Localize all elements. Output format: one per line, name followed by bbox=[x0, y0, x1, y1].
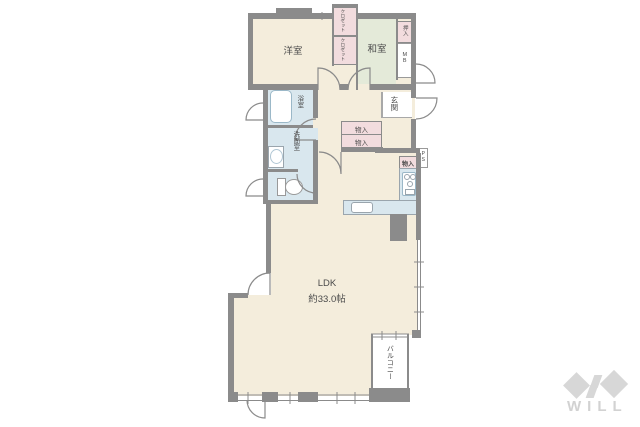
label-kitchen-storage: 物入 bbox=[399, 159, 417, 168]
door-arc-meter-box bbox=[416, 64, 435, 83]
door-arc-toilet bbox=[297, 174, 316, 193]
door-arc-hall-ldk bbox=[319, 152, 341, 174]
window-bottom bbox=[234, 392, 370, 404]
door-arc-western-room bbox=[318, 68, 340, 90]
label-oshiire: 押入 bbox=[401, 25, 407, 36]
label-bath: 浴室 bbox=[295, 95, 302, 108]
label-ldk-size: 約33.0帖 bbox=[297, 291, 357, 305]
label-closet-1: クロゼット bbox=[340, 9, 345, 32]
floor-plan: 洋室 和室 クロゼット クロゼット 押入 MB PS 玄関 浴室 洗面室 物入 … bbox=[0, 0, 640, 427]
door-arc-bath-exterior bbox=[246, 103, 263, 120]
window-top bbox=[312, 12, 332, 20]
label-ldk: LDK bbox=[297, 278, 357, 289]
door-arc-entrance bbox=[416, 98, 437, 119]
doors-windows-layer bbox=[0, 0, 640, 427]
door-arc-ldk-extension bbox=[248, 273, 270, 295]
label-closet-2: クロゼット bbox=[340, 38, 345, 61]
door-arc-bottom-exterior bbox=[247, 400, 265, 418]
door-arc-washroom-exterior bbox=[246, 179, 263, 196]
label-meter-box: MB bbox=[401, 52, 407, 64]
logo-text: WILL bbox=[567, 398, 628, 415]
label-washroom: 洗面室 bbox=[291, 131, 298, 151]
window-right bbox=[414, 240, 424, 332]
label-pipe-space: PS bbox=[420, 151, 425, 163]
label-balcony: バルコニー bbox=[386, 345, 393, 380]
label-western-room: 洋室 bbox=[268, 43, 318, 57]
label-hall-storage-2: 物入 bbox=[341, 137, 382, 147]
label-japanese-room: 和室 bbox=[352, 41, 402, 55]
label-entrance: 玄関 bbox=[390, 96, 398, 111]
label-hall-storage-1: 物入 bbox=[341, 124, 382, 134]
door-arc-japanese-room bbox=[348, 68, 370, 90]
window-balcony bbox=[371, 331, 409, 340]
